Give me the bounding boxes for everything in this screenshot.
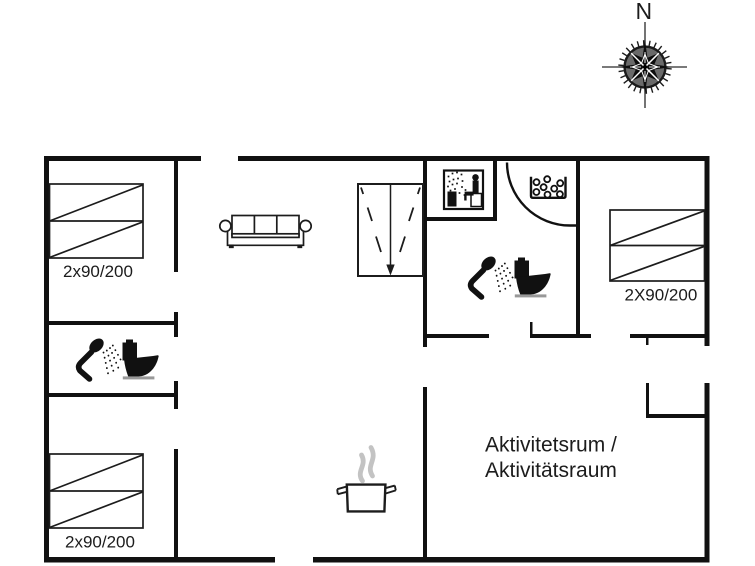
svg-text:2x90/200: 2x90/200 [65, 533, 135, 552]
svg-text:2x90/200: 2x90/200 [63, 262, 133, 281]
svg-text:2X90/200: 2X90/200 [625, 286, 698, 305]
svg-text:Aktivitetsrum /: Aktivitetsrum / [485, 434, 617, 457]
svg-text:Aktivitätsraum: Aktivitätsraum [485, 459, 617, 482]
svg-text:N: N [636, 0, 653, 24]
